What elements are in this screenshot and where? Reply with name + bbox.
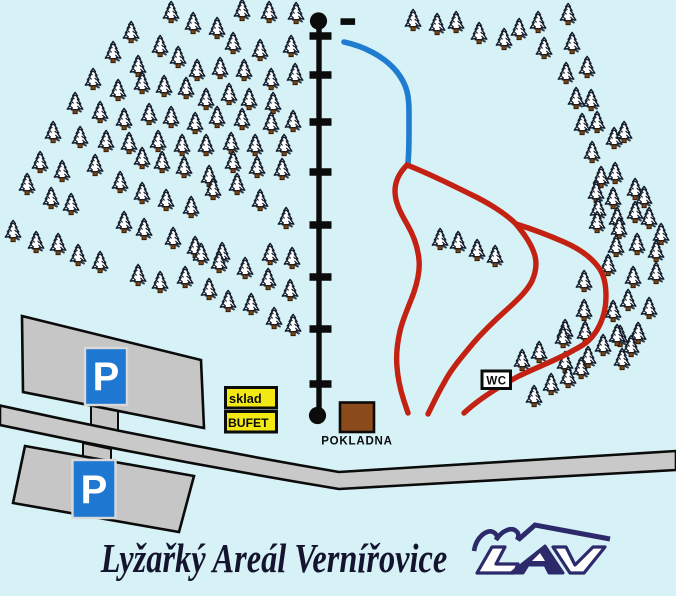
svg-text:P: P	[93, 355, 120, 399]
svg-text:sklad: sklad	[229, 391, 262, 406]
svg-text:Lyžařký Areál Vernířovice: Lyžařký Areál Vernířovice	[100, 535, 447, 580]
svg-text:P: P	[81, 468, 108, 512]
svg-text:BUFET: BUFET	[228, 416, 269, 430]
svg-text:POKLADNA: POKLADNA	[321, 436, 393, 448]
svg-text:WC: WC	[486, 376, 506, 388]
